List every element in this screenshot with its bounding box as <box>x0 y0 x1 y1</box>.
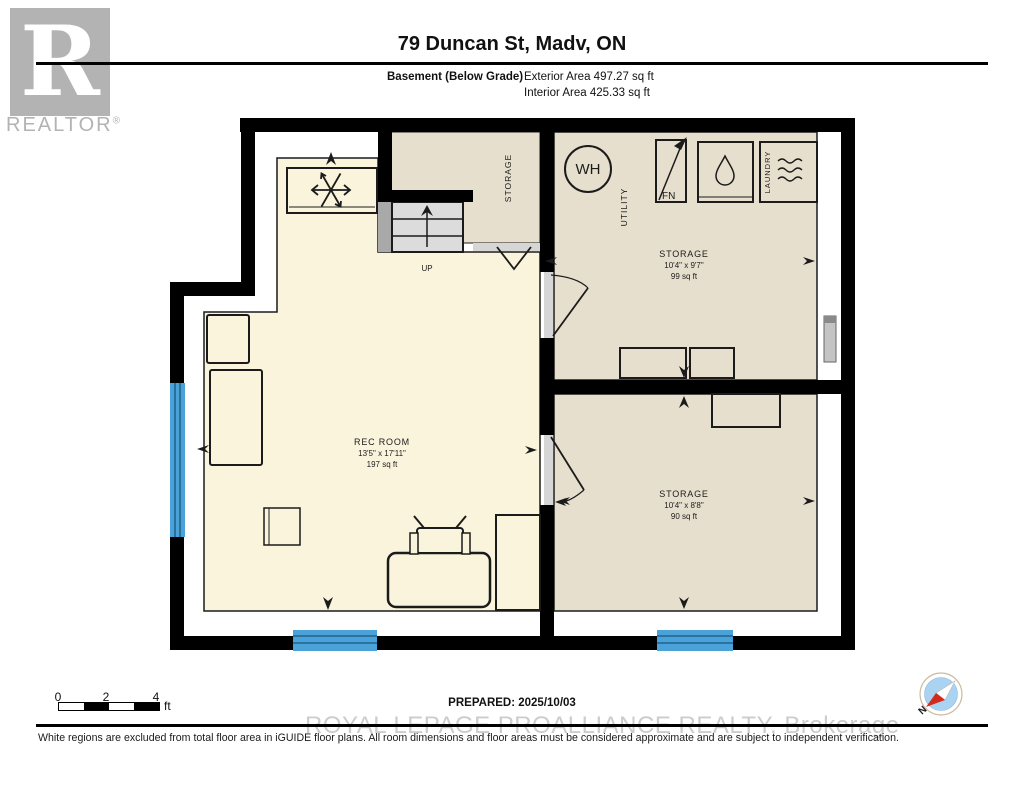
door-opening <box>544 272 553 338</box>
storage-upper-name: STORAGE <box>659 249 708 259</box>
laundry-tub <box>698 142 753 202</box>
wall-interior-vertical <box>540 505 554 636</box>
rec-room-dims: 13'5" x 17'11" <box>358 449 406 458</box>
wall-right <box>841 118 855 650</box>
desk <box>388 553 490 607</box>
stair-landing-strip <box>378 202 392 252</box>
wall-top <box>240 118 855 132</box>
wall-stair-header <box>378 190 473 202</box>
wall-left-upper <box>241 118 255 296</box>
water-heater: WH <box>565 146 611 192</box>
shelf <box>496 515 540 610</box>
utility-label: UTILITY <box>619 188 629 227</box>
disclaimer-text: White regions are excluded from total fl… <box>38 732 988 744</box>
water-heater-label: WH <box>576 161 601 178</box>
laundry-label: LAUNDRY <box>763 151 772 194</box>
rec-room-area: 197 sq ft <box>367 460 398 469</box>
footer-divider <box>36 724 988 727</box>
wall-interior-vertical <box>540 338 554 435</box>
freezer <box>287 168 377 213</box>
storage-upper-dims: 10'4" x 9'7" <box>664 261 704 270</box>
floorplan-page: R REALTOR® 79 Duncan St, Madv, ON Baseme… <box>0 0 1024 791</box>
side-table <box>264 508 300 545</box>
floorplan-drawing: WH FN LAUNDRY <box>0 0 1024 791</box>
storage-box <box>620 348 686 378</box>
wall-closet-side <box>378 132 392 202</box>
armchair <box>207 315 249 363</box>
storage-lower-name: STORAGE <box>659 489 708 499</box>
door-opening <box>544 435 553 505</box>
window-bottom-right <box>657 630 733 651</box>
stairs-up-label: UP <box>421 264 432 273</box>
compass: N <box>917 673 962 717</box>
storage-box <box>690 348 734 378</box>
rec-room-name: REC ROOM <box>354 437 410 447</box>
furnace-label: FN <box>662 191 675 202</box>
storage-lower-area: 90 sq ft <box>671 512 698 521</box>
storage-lower-dims: 10'4" x 8'8" <box>664 501 704 510</box>
storage-upper-area: 99 sq ft <box>671 272 698 281</box>
storage-closet-label: STORAGE <box>503 154 513 202</box>
washer: LAUNDRY <box>760 142 817 202</box>
storage-box <box>712 394 780 427</box>
furnace: FN <box>656 137 687 202</box>
electrical-panel <box>824 316 836 362</box>
stairs <box>378 202 463 252</box>
sofa <box>210 370 262 465</box>
wall-jog <box>170 282 255 296</box>
window-left <box>170 383 185 537</box>
wall-interior-horizontal <box>554 380 841 394</box>
prepared-date: PREPARED: 2025/10/03 <box>0 697 1024 709</box>
wall-bottom <box>170 636 855 650</box>
wall-interior-vertical <box>540 132 554 272</box>
window-bottom-left <box>293 630 377 651</box>
